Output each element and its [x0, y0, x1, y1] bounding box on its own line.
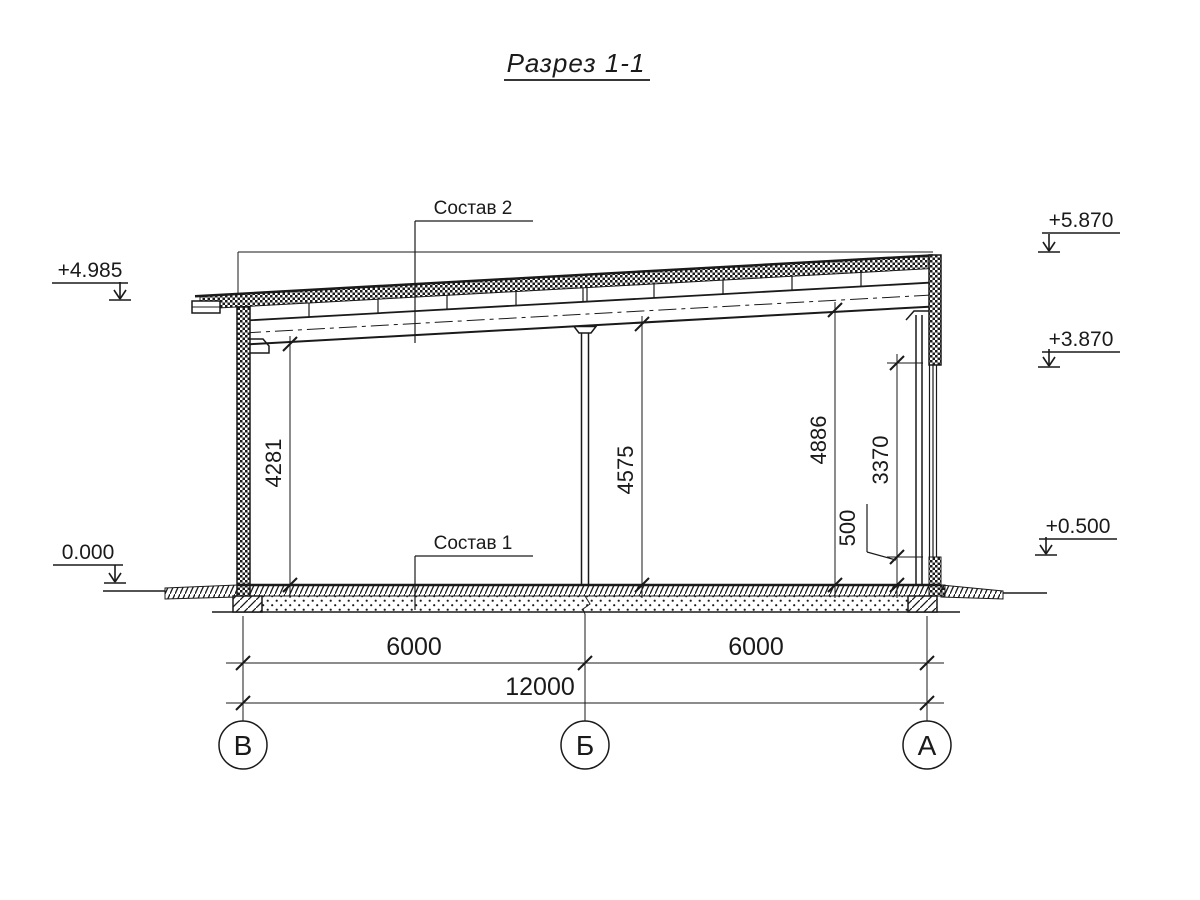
axis-label-b: Б: [576, 730, 594, 761]
dimension-4575: 4575: [613, 316, 649, 598]
dimension-3370-500-chain: 3370 500: [835, 354, 923, 598]
elevation-arrow-icon: [1038, 234, 1060, 252]
dimension-span-left: 6000: [386, 633, 442, 661]
dimension-total: 12000: [505, 673, 575, 701]
apron-left: [165, 585, 237, 599]
elevation-marks: +4.985 0.000 +5.870 +3.870 +0.500: [52, 209, 1120, 583]
left-wall: [237, 307, 250, 597]
elevation-mark-right-mid: +3.870: [1038, 328, 1120, 367]
roof-beam-bottom: [250, 307, 929, 345]
elevation-mark-right-top: +5.870: [1038, 209, 1120, 252]
apron-right: [941, 585, 1003, 599]
callout-composition-2: Состав 2: [415, 198, 533, 343]
vertical-dimensions: 4281 4575 4886 3370 500: [261, 302, 923, 598]
elevation-mark-left-top: +4.985: [52, 259, 131, 300]
right-wall-plinth: [929, 557, 941, 585]
beam-bracket-left: [250, 339, 269, 353]
elevation-arrow-icon: [104, 565, 126, 583]
elevation-value: 0.000: [62, 541, 115, 564]
dimension-value: 4886: [806, 416, 831, 465]
horizontal-dimensions: 6000 6000 12000 В Б А: [219, 596, 951, 769]
dimension-4886: 4886: [806, 302, 842, 598]
roof-assembly: [192, 252, 933, 353]
roof-top-edge: [195, 255, 933, 296]
elevation-value: +5.870: [1049, 209, 1114, 232]
elevation-value: +0.500: [1046, 515, 1111, 538]
section-drawing: Разрез 1-1: [0, 0, 1200, 900]
right-column: [916, 315, 922, 585]
axis-label-a: А: [918, 730, 937, 761]
elevation-value: +4.985: [58, 259, 123, 282]
dimension-value-3370: 3370: [868, 436, 893, 485]
dimension-4281: 4281: [261, 336, 297, 598]
elevation-mark-right-low: +0.500: [1035, 515, 1117, 555]
dimension-value: 4575: [613, 446, 638, 495]
foundation-left: [233, 596, 262, 612]
drawing-title-block: Разрез 1-1: [504, 48, 650, 80]
elevation-mark-left-zero: 0.000: [53, 541, 126, 583]
dimension-500-leader: [867, 552, 896, 560]
drawing-sheet: Разрез 1-1: [0, 0, 1200, 900]
axis-markers: В Б А: [219, 721, 951, 769]
page-title: Разрез 1-1: [507, 48, 646, 78]
dimension-span-right: 6000: [728, 633, 784, 661]
right-wall-panel: [930, 365, 937, 557]
middle-column-capital: [574, 327, 596, 334]
dimension-value: 4281: [261, 439, 286, 488]
foundation-right: [908, 596, 937, 612]
elevation-value: +3.870: [1049, 328, 1114, 351]
floor-topping-layer: [250, 586, 929, 597]
elevation-arrow-icon: [109, 282, 131, 300]
axis-label-v: В: [234, 730, 253, 761]
right-wall-upper: [929, 255, 941, 365]
beam-bracket-right: [906, 311, 929, 320]
callout-composition-2-label: Состав 2: [434, 198, 513, 219]
dimension-value-500: 500: [835, 510, 860, 547]
callout-composition-1-label: Состав 1: [434, 533, 513, 554]
middle-column: [574, 327, 596, 586]
